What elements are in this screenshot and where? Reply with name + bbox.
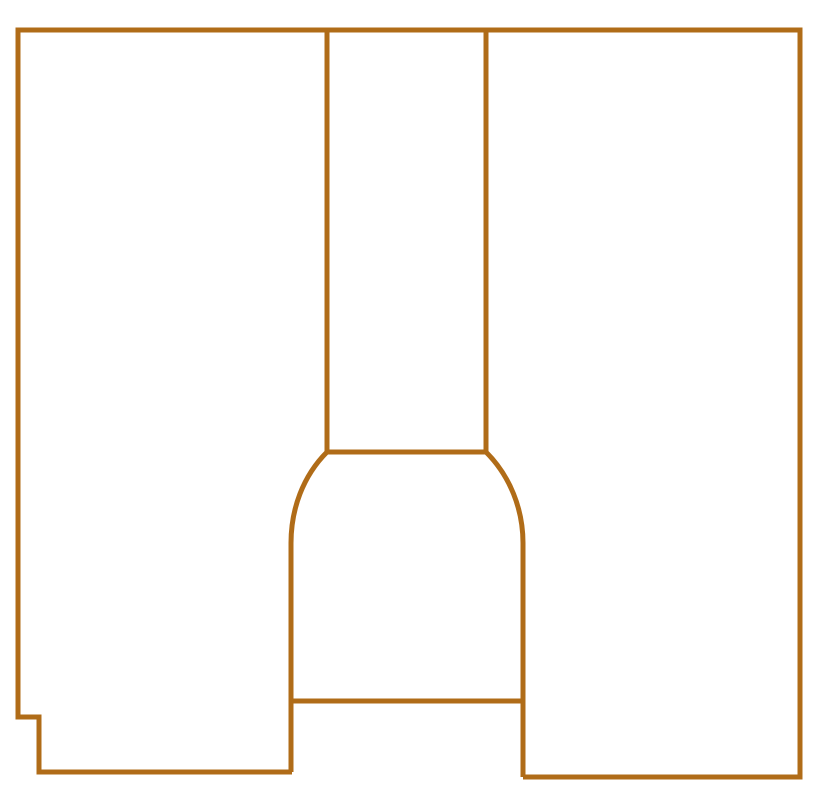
bell-left-line	[291, 452, 327, 772]
bell-right-line	[486, 452, 523, 777]
diagram-svg	[0, 0, 817, 810]
outer-outline	[18, 30, 800, 777]
drawing-page	[0, 0, 817, 810]
